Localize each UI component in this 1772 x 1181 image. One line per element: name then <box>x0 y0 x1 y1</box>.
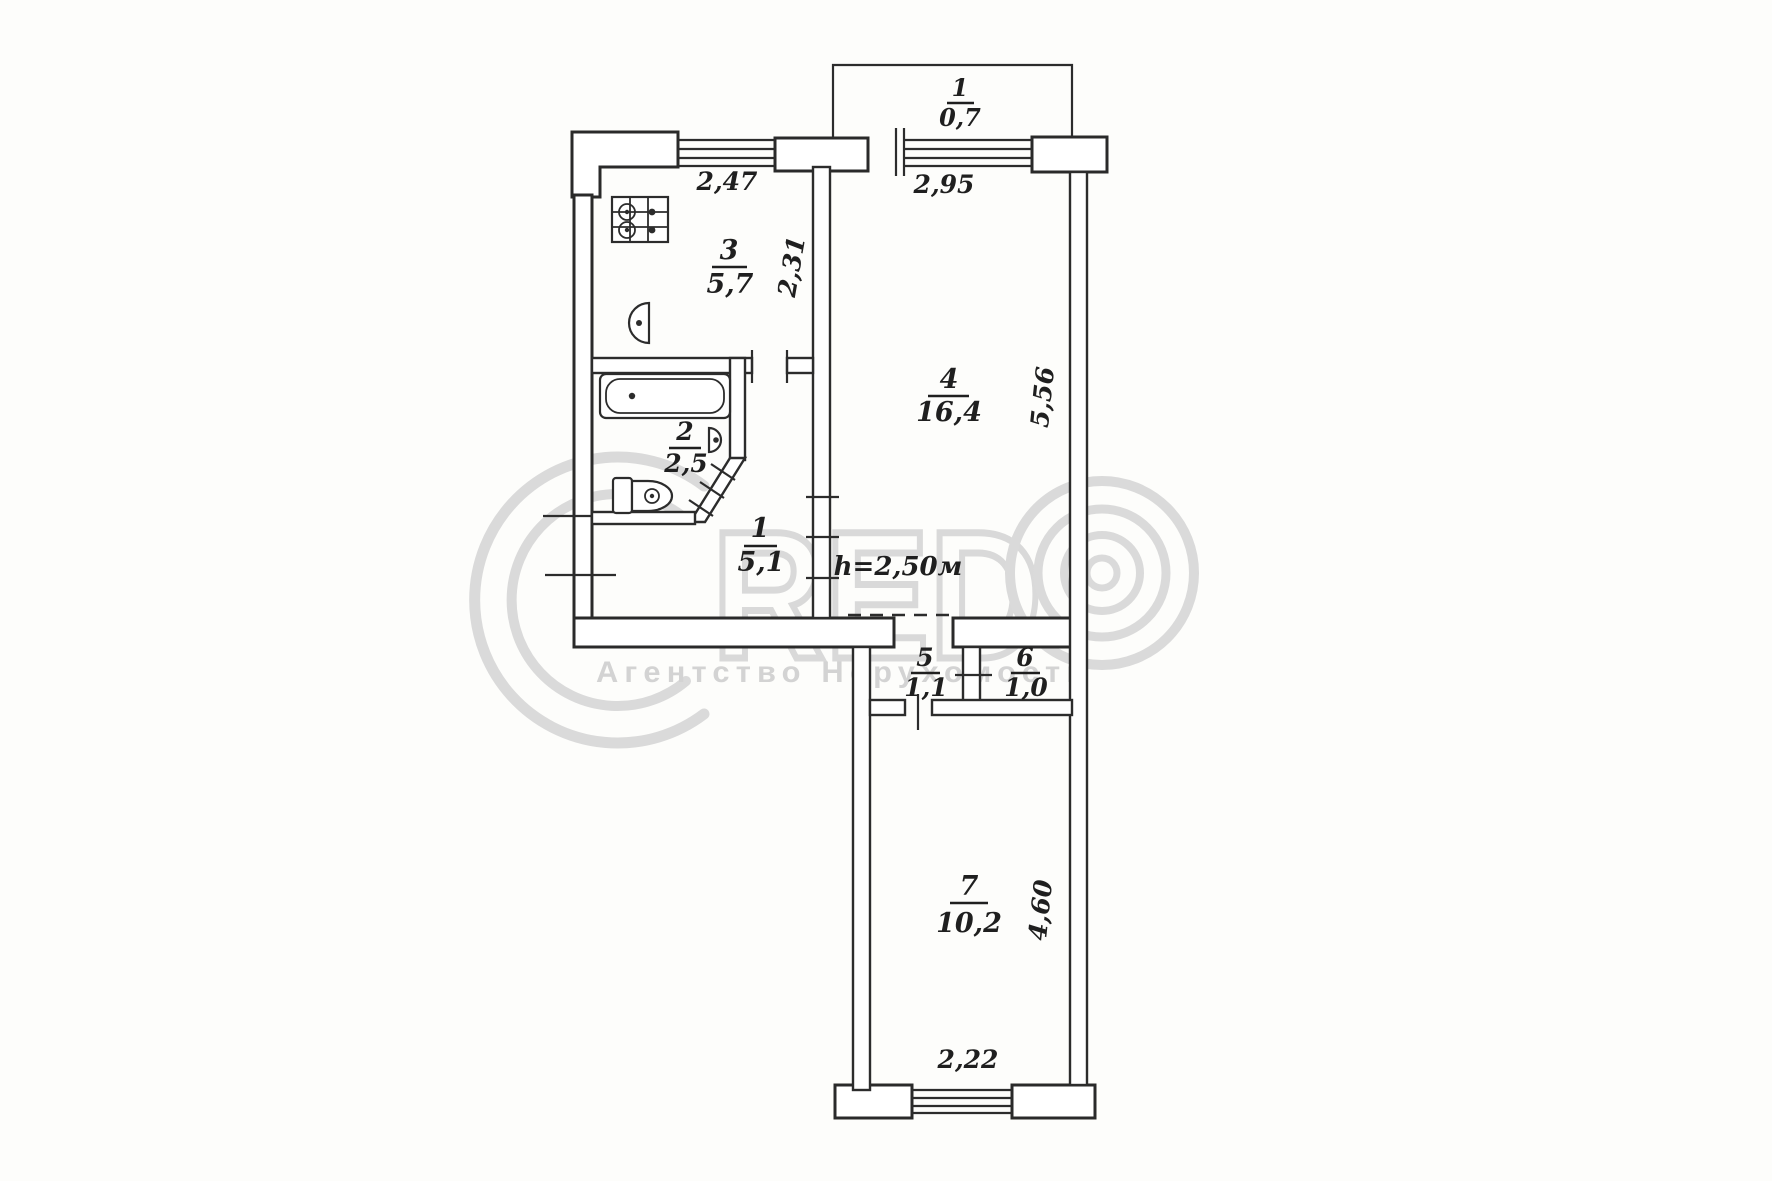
room-number: 4 <box>940 364 959 395</box>
wall-room7-top-right <box>932 700 1072 715</box>
washbasin-icon <box>709 428 721 452</box>
room-number: 7 <box>960 871 979 902</box>
room-area: 1,1 <box>904 673 948 702</box>
room-number: 1 <box>751 513 770 544</box>
wall-bathroom-bottom <box>592 512 695 524</box>
room-number: 3 <box>720 235 739 266</box>
exterior-walls <box>572 132 1107 1118</box>
wall-top-left-corner <box>572 132 678 197</box>
wall-left <box>574 195 592 618</box>
room-area: 16,4 <box>916 397 982 428</box>
room-label-room7: 7 10,2 <box>936 871 1002 939</box>
dim-room7-depth: 4,60 <box>1023 878 1058 942</box>
wall-room7-top-left <box>870 700 905 715</box>
room7-window <box>912 1090 1012 1113</box>
stove-icon <box>612 197 668 242</box>
room-number: 6 <box>1016 643 1033 672</box>
wall-bathroom-right <box>730 358 745 460</box>
wall-room7-bottom-right <box>1012 1085 1095 1118</box>
wall-kitchen-bottom-left <box>592 358 752 373</box>
room-label-living-room: 4 16,4 <box>916 364 982 428</box>
wall-lower-left <box>853 647 870 1090</box>
toilet-icon <box>613 478 672 513</box>
room-area: 5,1 <box>738 547 785 578</box>
wall-kitchen-room4 <box>813 167 830 618</box>
room-number: 5 <box>916 643 933 672</box>
dim-room4-depth: 5,56 <box>1025 365 1060 429</box>
bathtub-icon <box>600 374 730 418</box>
dim-room4-width: 2,95 <box>913 170 975 199</box>
wall-kitchen-bottom-right <box>787 358 813 373</box>
dim-room7-width: 2,22 <box>937 1045 999 1074</box>
room-area: 5,7 <box>707 269 754 300</box>
room-number: 2 <box>675 417 693 446</box>
wall-room7-bottom-left <box>835 1085 912 1118</box>
dim-kitchen-width: 2,47 <box>696 167 758 196</box>
room-area: 2,5 <box>663 449 708 478</box>
wall-right <box>1070 172 1087 1085</box>
floor-plan-scan: RED Агентство Нерухомості <box>0 0 1772 1181</box>
kitchen-sink-icon <box>629 303 649 343</box>
room-area: 0,7 <box>939 103 981 132</box>
room-number: 1 <box>952 73 969 102</box>
dim-kitchen-depth: 2,31 <box>772 234 811 300</box>
room-area: 10,2 <box>936 908 1002 939</box>
wall-top-right-corner <box>1032 137 1107 172</box>
wall-hallway-bottom <box>574 618 894 647</box>
room-area: 1,0 <box>1004 673 1048 702</box>
room-label-kitchen: 3 5,7 <box>707 235 754 300</box>
room4-window <box>905 140 1032 166</box>
room-label-bathroom: 2 2,5 <box>663 417 708 478</box>
kitchen-window <box>678 140 775 166</box>
room-label-balcony: 1 0,7 <box>939 73 981 132</box>
dim-ceiling-height: h=2,50м <box>834 552 963 582</box>
